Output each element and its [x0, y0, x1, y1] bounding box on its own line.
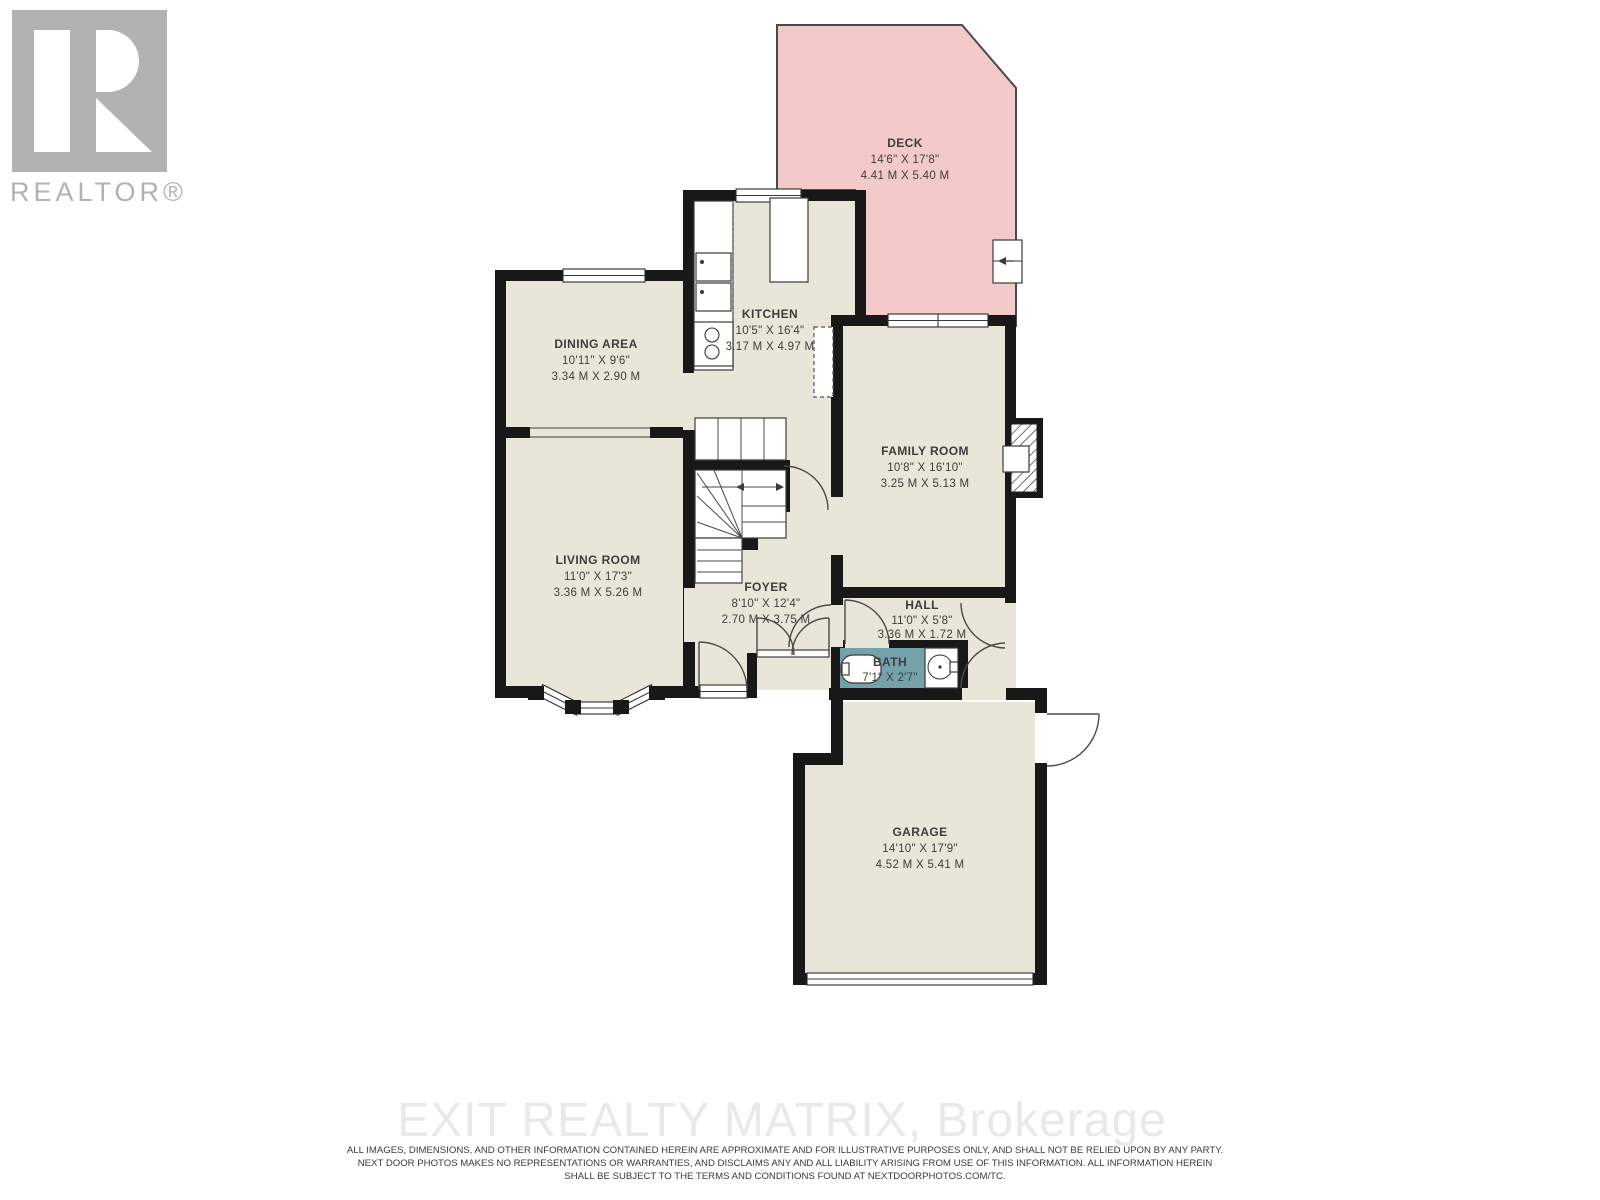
fireplace [1003, 418, 1043, 498]
svg-text:10'8" X 16'10": 10'8" X 16'10" [887, 462, 963, 474]
svg-text:BATH: BATH [873, 655, 907, 669]
kitchen-family-junction [843, 315, 856, 326]
stair-wall [683, 460, 790, 470]
entry-alcove-floor [757, 657, 829, 688]
svg-text:3.25 M X 5.13 M: 3.25 M X 5.13 M [881, 478, 970, 490]
realtor-logo-text: REALTOR® [10, 177, 187, 207]
garage-door [807, 973, 1033, 985]
svg-text:3.36 M X 1.72 M: 3.36 M X 1.72 M [878, 629, 967, 641]
svg-text:14'6" X 17'8": 14'6" X 17'8" [871, 154, 940, 166]
svg-text:3.34 M X 2.90 M: 3.34 M X 2.90 M [552, 371, 641, 383]
floorplan-canvas: REALTOR® [0, 0, 1600, 1200]
svg-text:FOYER: FOYER [744, 580, 787, 594]
svg-text:HALL: HALL [905, 598, 939, 612]
wall-oven [696, 253, 731, 281]
dining-window [563, 269, 645, 282]
svg-text:DINING AREA: DINING AREA [554, 337, 637, 351]
room-label-dining: DINING AREA 10'11" X 9'6" 3.34 M X 2.90 … [552, 337, 641, 383]
garage-west-wall [793, 753, 805, 985]
svg-text:7'1" X 2'7": 7'1" X 2'7" [862, 672, 918, 684]
svg-text:4.52 M X 5.41 M: 4.52 M X 5.41 M [876, 859, 965, 871]
fireplace-firebox [1003, 446, 1029, 472]
kitchen-west-wall [683, 190, 694, 373]
brokerage-watermark: EXIT REALTY MATRIX, Brokerage [397, 1094, 1167, 1147]
svg-text:4.41 M X 5.40 M: 4.41 M X 5.40 M [861, 170, 950, 182]
svg-text:LIVING ROOM: LIVING ROOM [555, 553, 640, 567]
svg-text:3.36 M X 5.26 M: 3.36 M X 5.26 M [554, 587, 643, 599]
svg-text:11'0" X 5'8": 11'0" X 5'8" [891, 615, 952, 627]
deck-steps [993, 240, 1022, 283]
svg-text:GARAGE: GARAGE [892, 825, 947, 839]
svg-text:FAMILY ROOM: FAMILY ROOM [881, 444, 969, 458]
garage-side-door-gap [1035, 713, 1047, 763]
garage-side-door [1047, 714, 1099, 766]
room-label-living: LIVING ROOM 11'0" X 17'3" 3.36 M X 5.26 … [554, 553, 643, 599]
realtor-logo: REALTOR® [10, 10, 187, 207]
toilet-tank [950, 662, 958, 672]
realtor-logo-r-bar [34, 30, 70, 152]
svg-text:11'0" X 17'3": 11'0" X 17'3" [564, 571, 632, 583]
svg-text:10'5" X 16'4": 10'5" X 16'4" [736, 325, 805, 337]
svg-text:10'11" X 9'6": 10'11" X 9'6" [562, 355, 630, 367]
family-south-wall [831, 587, 1016, 598]
svg-text:KITCHEN: KITCHEN [742, 307, 798, 321]
family-window [888, 314, 988, 327]
refrigerator [814, 327, 833, 397]
svg-text:14'10" X 17'9": 14'10" X 17'9" [882, 843, 958, 855]
disclaimer-line-3: SHALL BE SUBJECT TO THE TERMS AND CONDIT… [564, 1171, 1005, 1182]
foyer-west-wall [683, 430, 695, 697]
stair-winder [695, 470, 786, 538]
front-sidelight-window [700, 685, 747, 698]
kitchen-island [770, 198, 808, 282]
wall-oven-2 [696, 283, 731, 311]
foyer-hall-door-gap [831, 605, 843, 647]
alcove-west-wall [747, 653, 757, 698]
bath-door-gap [845, 640, 889, 649]
bathtub-faucet [842, 663, 849, 675]
svg-text:DECK: DECK [887, 136, 923, 150]
svg-text:2.70 M X 3.75 M: 2.70 M X 3.75 M [722, 614, 811, 626]
hall-east-door-gap [1005, 603, 1016, 688]
kitchen-deck-wall [855, 190, 866, 326]
living-foyer-door-gap [684, 588, 695, 642]
disclaimer: ALL IMAGES, DIMENSIONS, AND OTHER INFORM… [347, 1145, 1223, 1182]
room-label-family: FAMILY ROOM 10'8" X 16'10" 3.25 M X 5.13… [881, 444, 970, 490]
svg-text:3.17 M X 4.97 M: 3.17 M X 4.97 M [726, 341, 815, 353]
disclaimer-line-2: NEXT DOOR PHOTOS MAKES NO REPRESENTATION… [358, 1158, 1213, 1169]
svg-text:8'10" X 12'4": 8'10" X 12'4" [732, 598, 801, 610]
dining-floor [506, 281, 683, 427]
garage-entry-door-gap [962, 688, 1006, 700]
disclaimer-line-1: ALL IMAGES, DIMENSIONS, AND OTHER INFORM… [347, 1145, 1223, 1156]
west-exterior-wall [495, 270, 506, 697]
